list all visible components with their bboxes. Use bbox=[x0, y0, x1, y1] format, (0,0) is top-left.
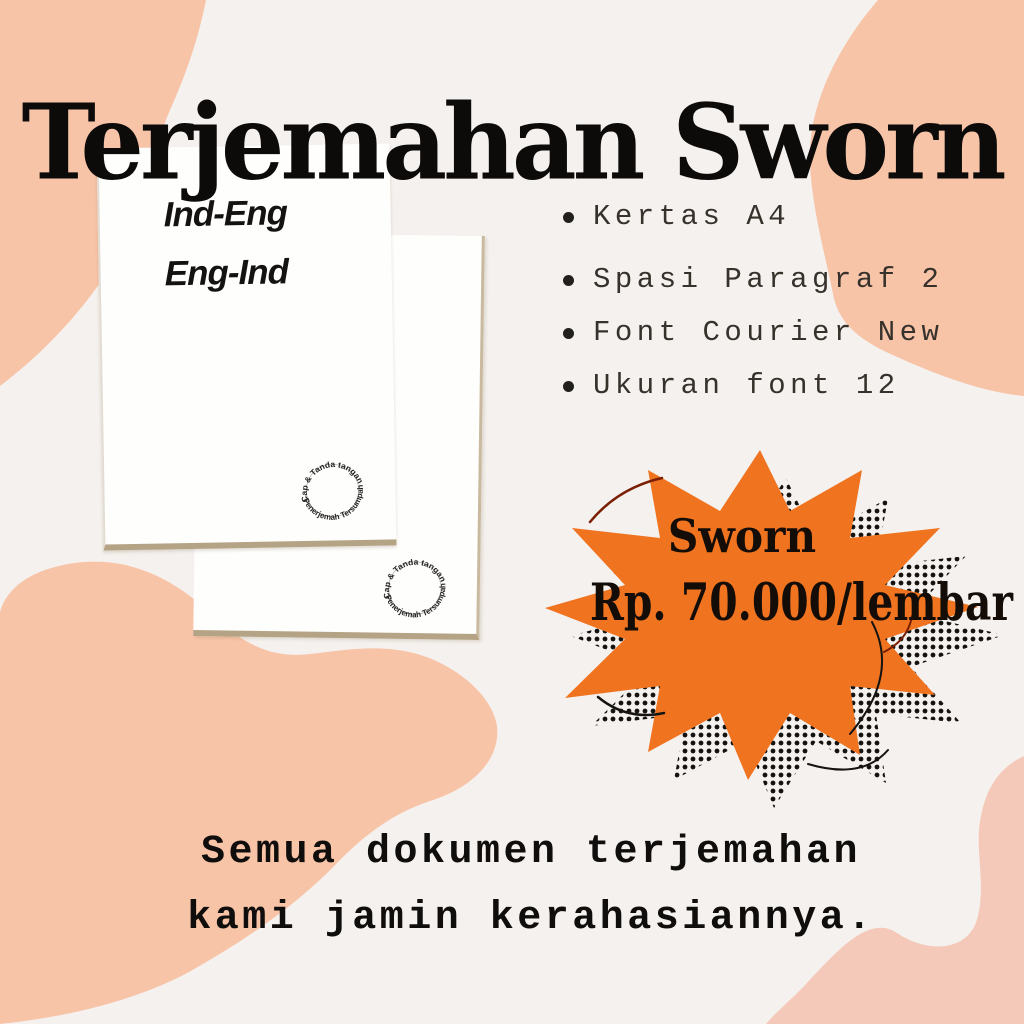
tagline-line-1: Semua dokumen terjemahan bbox=[38, 820, 1024, 886]
poster-title: Terjemahan Sworn bbox=[0, 81, 1024, 204]
burst-price: Rp. 70.000/lembar bbox=[590, 576, 894, 630]
tagline-line-2: kami jamin kerahasiannya. bbox=[38, 886, 1024, 952]
tagline: Semua dokumen terjemahan kami jamin kera… bbox=[38, 820, 1024, 952]
poster-canvas: Terjemahan Sworn Cap & Tanda tangan Pene… bbox=[0, 0, 1024, 1024]
burst-service-name: Sworn bbox=[567, 510, 917, 562]
price-burst-text: Sworn Rp. 70.000/lembar bbox=[552, 510, 932, 630]
